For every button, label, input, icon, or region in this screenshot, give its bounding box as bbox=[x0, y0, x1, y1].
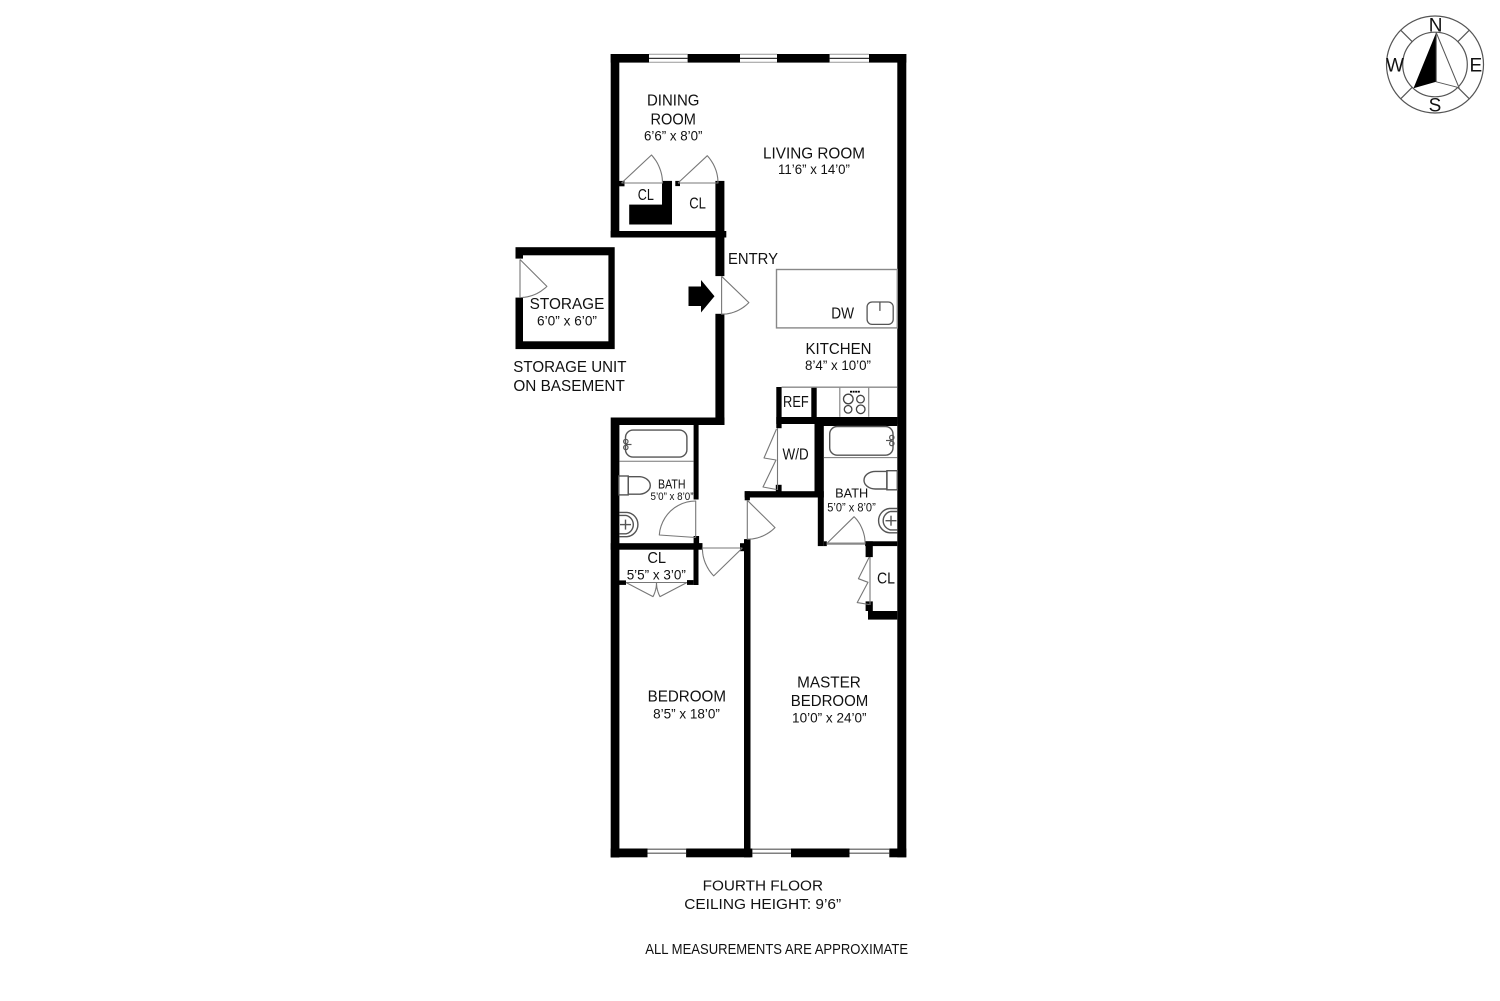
svg-text:ALL MEASUREMENTS ARE APPROXIMA: ALL MEASUREMENTS ARE APPROXIMATE bbox=[645, 942, 908, 958]
svg-text:5’5” x 3’0”: 5’5” x 3’0” bbox=[627, 567, 687, 583]
svg-text:DW: DW bbox=[831, 305, 855, 322]
svg-text:ENTRY: ENTRY bbox=[728, 251, 778, 268]
svg-text:STORAGE UNIT: STORAGE UNIT bbox=[513, 359, 626, 376]
svg-text:MASTER: MASTER bbox=[797, 675, 861, 692]
svg-text:5’0” x 8’0”: 5’0” x 8’0” bbox=[827, 501, 876, 515]
svg-text:BATH: BATH bbox=[835, 486, 868, 500]
svg-text:DINING: DINING bbox=[647, 93, 699, 110]
svg-text:FOURTH FLOOR: FOURTH FLOOR bbox=[703, 878, 824, 895]
svg-text:CL: CL bbox=[877, 571, 895, 588]
svg-text:6’6” x 8’0”: 6’6” x 8’0” bbox=[644, 127, 703, 143]
svg-text:STORAGE: STORAGE bbox=[530, 296, 605, 313]
svg-text:W: W bbox=[1386, 56, 1404, 77]
svg-text:CL: CL bbox=[638, 187, 654, 204]
svg-text:CL: CL bbox=[689, 195, 706, 212]
svg-text:5’0” x 8’0”: 5’0” x 8’0” bbox=[651, 491, 694, 503]
svg-text:W/D: W/D bbox=[783, 446, 809, 463]
svg-text:BEDROOM: BEDROOM bbox=[791, 693, 869, 710]
svg-text:REF: REF bbox=[783, 394, 809, 411]
svg-text:ON BASEMENT: ON BASEMENT bbox=[513, 378, 625, 395]
svg-text:N: N bbox=[1429, 16, 1443, 37]
svg-text:KITCHEN: KITCHEN bbox=[806, 341, 872, 358]
svg-text:8’4” x 10’0”: 8’4” x 10’0” bbox=[805, 357, 871, 373]
svg-text:S: S bbox=[1429, 95, 1442, 116]
svg-text:6’0” x 6’0”: 6’0” x 6’0” bbox=[537, 313, 597, 329]
svg-text:10’0” x 24’0”: 10’0” x 24’0” bbox=[792, 710, 867, 726]
svg-text:11’6” x 14’0”: 11’6” x 14’0” bbox=[778, 161, 850, 177]
svg-text:BEDROOM: BEDROOM bbox=[648, 689, 726, 706]
svg-text:CL: CL bbox=[647, 550, 666, 567]
svg-text:BATH: BATH bbox=[658, 477, 686, 491]
svg-text:8’5” x 18’0”: 8’5” x 18’0” bbox=[653, 706, 720, 722]
svg-text:E: E bbox=[1469, 56, 1482, 77]
svg-text:ROOM: ROOM bbox=[651, 111, 696, 128]
svg-text:CEILING HEIGHT: 9’6”: CEILING HEIGHT: 9’6” bbox=[684, 896, 841, 913]
